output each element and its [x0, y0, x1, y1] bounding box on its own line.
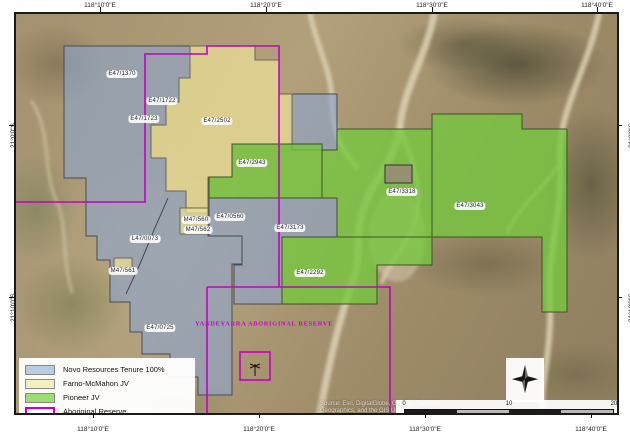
frame-tick [425, 413, 426, 418]
tenement-label: L47/0073 [130, 235, 161, 243]
frame-tick [597, 7, 598, 12]
tenement-label: E47/2943 [236, 159, 267, 167]
frame-tick [617, 297, 622, 298]
tenement-label: E47/3173 [274, 224, 305, 232]
tenement-label: M47/560 [182, 216, 211, 224]
map-canvas: E47/1370 E47/1722 E47/1723 E47/2502 E47/… [14, 12, 619, 415]
legend-label: Aboriginal Reserve [63, 407, 126, 415]
scale-bar-graphic [404, 409, 614, 415]
frame-tick [93, 413, 94, 418]
tenement-label: E47/1370 [106, 70, 137, 78]
legend-label: Pioneer JV [63, 393, 100, 402]
legend: Novo Resources Tenure 100% Farno-McMahon… [19, 358, 195, 415]
scale-bar-numbers: 0 10 20 [404, 401, 614, 409]
frame-tick [100, 7, 101, 12]
pioneer-swatch [25, 393, 55, 403]
reserve-name-label: YANDEYARRA ABORIGINAL RESERVE [195, 321, 333, 328]
scale-tick-0: 0 [402, 401, 405, 407]
legend-item-novo: Novo Resources Tenure 100% [25, 363, 189, 376]
tenement-label: E47/1723 [128, 115, 159, 123]
legend-item-pioneer: Pioneer JV [25, 391, 189, 404]
map-figure: E47/1370 E47/1722 E47/1723 E47/2502 E47/… [0, 0, 630, 437]
longitude-label-bottom: 118°40'0"E [575, 426, 607, 433]
tenement-label: E47/2502 [201, 117, 232, 125]
tenement-label: E47/0560 [214, 213, 245, 221]
frame-tick [617, 125, 622, 126]
longitude-label-bottom: 118°30'0"E [409, 426, 441, 433]
excluded-area-box [385, 165, 412, 183]
farno-swatch [25, 379, 55, 389]
scale-bar: 0 10 20 Kilometers [396, 400, 619, 415]
frame-tick [9, 297, 14, 298]
north-arrow [506, 358, 544, 402]
novo-swatch [25, 365, 55, 375]
scale-tick-20: 20 [611, 401, 618, 407]
legend-label: Farno-McMahon JV [63, 379, 129, 388]
frame-tick [432, 7, 433, 12]
tenement-label: E47/1722 [146, 97, 177, 105]
tenement-label: E47/3318 [386, 188, 417, 196]
reserve-swatch [25, 407, 55, 416]
compass-star-icon [510, 361, 540, 399]
scale-tick-10: 10 [506, 401, 513, 407]
tenement-label: M47/562 [184, 226, 213, 234]
tenement-label: M47/561 [109, 267, 138, 275]
longitude-label-bottom: 118°20'0"E [243, 426, 275, 433]
frame-tick [259, 413, 260, 418]
frame-tick [9, 125, 14, 126]
latitude-label-left: 21°0'0"S [10, 123, 17, 148]
tenement-label: E47/3043 [454, 202, 485, 210]
frame-tick [591, 413, 592, 418]
frame-tick [266, 7, 267, 12]
site-marker [250, 364, 260, 376]
tenement-label: E47/0725 [144, 324, 175, 332]
longitude-label-bottom: 118°10'0"E [77, 426, 109, 433]
legend-item-reserve: Aboriginal Reserve [25, 405, 189, 415]
tenement-label: E47/2292 [294, 269, 325, 277]
legend-item-farno: Farno-McMahon JV [25, 377, 189, 390]
legend-label: Novo Resources Tenure 100% [63, 365, 165, 374]
